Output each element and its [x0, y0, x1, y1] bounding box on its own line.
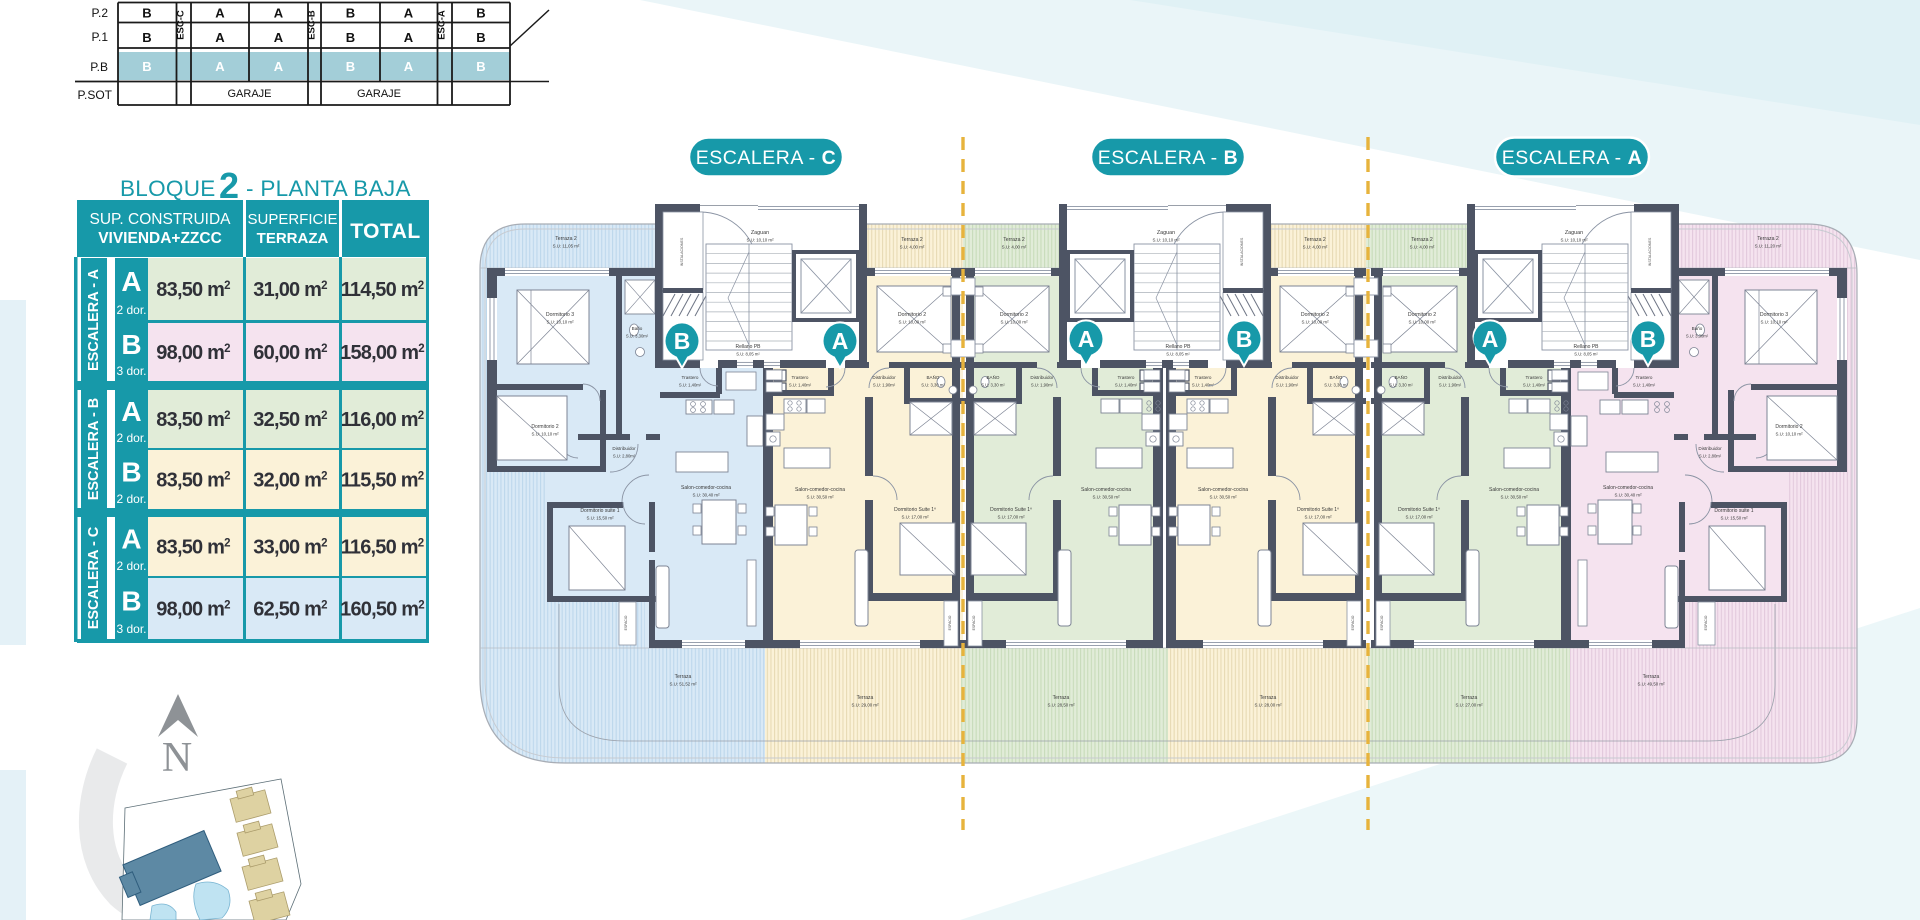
- svg-text:Dormitorio suite 1: Dormitorio suite 1: [1714, 508, 1753, 514]
- svg-text:S.U: 10,10 m²: S.U: 10,10 m²: [1775, 432, 1803, 437]
- svg-text:Trastero: Trastero: [682, 375, 699, 380]
- svg-text:S.U: 15,50 m²: S.U: 15,50 m²: [1720, 516, 1748, 521]
- svg-text:BLOQUE: BLOQUE: [120, 176, 216, 201]
- svg-text:A: A: [404, 30, 414, 45]
- svg-text:Dormitorio 2: Dormitorio 2: [898, 312, 926, 318]
- svg-text:Trastero: Trastero: [1195, 375, 1212, 380]
- svg-text:S.U: 2,80m²: S.U: 2,80m²: [1699, 454, 1722, 459]
- svg-text:Terraza 2: Terraza 2: [1304, 237, 1326, 243]
- svg-text:S.U: 28,00 m²: S.U: 28,00 m²: [1254, 703, 1282, 708]
- svg-text:INSTALACIONES: INSTALACIONES: [1648, 237, 1652, 266]
- svg-text:S.U: 10,10 m²: S.U: 10,10 m²: [1152, 238, 1180, 243]
- svg-text:Distribuidor: Distribuidor: [1275, 375, 1299, 380]
- svg-text:S.U: 1,40m²: S.U: 1,40m²: [1633, 383, 1656, 388]
- svg-text:Rellano PB: Rellano PB: [1165, 344, 1191, 350]
- svg-text:INSTALACIONES: INSTALACIONES: [680, 237, 684, 266]
- svg-text:S.U: 10,00 m²: S.U: 10,00 m²: [898, 320, 926, 325]
- svg-text:Rellano PB: Rellano PB: [735, 344, 761, 350]
- svg-text:Trastero: Trastero: [1636, 375, 1653, 380]
- svg-text:114,50 m2: 114,50 m2: [341, 279, 424, 301]
- svg-text:ESPACIO: ESPACIO: [948, 615, 952, 630]
- svg-text:116,00 m2: 116,00 m2: [341, 409, 424, 431]
- svg-text:98,00 m2: 98,00 m2: [156, 342, 230, 364]
- svg-text:GARAJE: GARAJE: [227, 88, 271, 100]
- svg-text:P.SOT: P.SOT: [78, 88, 113, 102]
- svg-text:ESPACIO: ESPACIO: [972, 615, 976, 630]
- svg-text:B: B: [1236, 326, 1253, 352]
- svg-text:ESCALERA - C: ESCALERA - C: [86, 526, 102, 629]
- svg-text:S.U: 10,10 m²: S.U: 10,10 m²: [746, 238, 774, 243]
- svg-text:S.U: 10,10 m²: S.U: 10,10 m²: [1760, 320, 1788, 325]
- svg-text:S.U: 10,10 m²: S.U: 10,10 m²: [546, 320, 574, 325]
- svg-text:Salon-comedor-cocina: Salon-comedor-cocina: [681, 485, 731, 491]
- svg-text:A: A: [404, 59, 414, 74]
- svg-text:S.U: 3,30 m²: S.U: 3,30 m²: [921, 383, 945, 388]
- svg-text:ESC-B: ESC-B: [307, 10, 318, 40]
- svg-text:B: B: [121, 329, 141, 360]
- svg-text:B: B: [121, 586, 141, 617]
- svg-text:ESPACIO: ESPACIO: [1704, 615, 1708, 630]
- svg-text:B: B: [476, 30, 485, 45]
- svg-text:S.U: 1,90m²: S.U: 1,90m²: [1439, 383, 1462, 388]
- svg-text:Distribuidor: Distribuidor: [1438, 375, 1462, 380]
- svg-text:ESPACIO: ESPACIO: [624, 615, 628, 630]
- svg-text:S.U: 4,00 m²: S.U: 4,00 m²: [1002, 245, 1027, 250]
- svg-text:S.U: 30,50 m²: S.U: 30,50 m²: [806, 495, 834, 500]
- svg-text:S.U: 17,00 m²: S.U: 17,00 m²: [901, 515, 929, 520]
- svg-text:ESCALERA - A: ESCALERA - A: [1502, 147, 1642, 169]
- svg-text:A: A: [215, 59, 225, 74]
- svg-text:Dormitorio 3: Dormitorio 3: [546, 312, 574, 318]
- svg-text:S.U: 27,00 m²: S.U: 27,00 m²: [1455, 703, 1483, 708]
- svg-text:A: A: [121, 396, 141, 427]
- svg-text:Rellano PB: Rellano PB: [1573, 344, 1599, 350]
- svg-text:S.U: 2,80m²: S.U: 2,80m²: [613, 454, 636, 459]
- svg-text:P.1: P.1: [92, 30, 109, 44]
- svg-text:160,50 m2: 160,50 m2: [340, 599, 424, 621]
- svg-text:Baño: Baño: [632, 326, 643, 331]
- svg-text:S.U: 1,90m²: S.U: 1,90m²: [1031, 383, 1054, 388]
- svg-text:Dormitorio Suite 1º: Dormitorio Suite 1º: [990, 507, 1032, 513]
- svg-text:2 dor.: 2 dor.: [116, 303, 146, 317]
- svg-text:Terraza: Terraza: [675, 674, 692, 680]
- svg-text:Dormitorio 2: Dormitorio 2: [1301, 312, 1329, 318]
- svg-text:Salon-comedor-cocina: Salon-comedor-cocina: [795, 487, 845, 493]
- svg-text:Salon-comedor-cocina: Salon-comedor-cocina: [1489, 487, 1539, 493]
- svg-text:Terraza: Terraza: [1461, 695, 1478, 701]
- svg-text:A: A: [404, 6, 414, 21]
- svg-text:B: B: [346, 30, 355, 45]
- svg-text:Terraza 2: Terraza 2: [1411, 237, 1433, 243]
- svg-text:83,50 m2: 83,50 m2: [156, 537, 230, 559]
- svg-text:P.2: P.2: [92, 6, 109, 20]
- svg-text:TERRAZA: TERRAZA: [257, 230, 329, 247]
- svg-text:Distribuidor: Distribuidor: [1698, 446, 1722, 451]
- svg-text:GARAJE: GARAJE: [357, 88, 401, 100]
- svg-text:S.U: 3,30m²: S.U: 3,30m²: [626, 334, 649, 339]
- svg-text:- PLANTA BAJA: - PLANTA BAJA: [246, 176, 411, 201]
- svg-text:S.U: 4,00 m²: S.U: 4,00 m²: [900, 245, 925, 250]
- svg-text:Baño: Baño: [1692, 326, 1703, 331]
- svg-text:ESPACIO: ESPACIO: [1380, 615, 1384, 630]
- svg-text:INSTALACIONES: INSTALACIONES: [1240, 237, 1244, 266]
- svg-text:BAÑO: BAÑO: [986, 374, 999, 380]
- svg-text:BAÑO: BAÑO: [926, 374, 939, 380]
- svg-text:ESCALERA - A: ESCALERA - A: [86, 268, 102, 371]
- svg-text:N: N: [162, 735, 192, 781]
- svg-text:Terraza 2: Terraza 2: [1757, 236, 1779, 242]
- svg-text:ESC-C: ESC-C: [176, 10, 187, 40]
- svg-text:2 dor.: 2 dor.: [116, 559, 146, 573]
- svg-text:S.U: 10,00 m²: S.U: 10,00 m²: [1408, 320, 1436, 325]
- svg-text:ESPACIO: ESPACIO: [1351, 615, 1355, 630]
- svg-text:S.U: 11,20 m²: S.U: 11,20 m²: [1755, 244, 1782, 249]
- svg-text:B: B: [142, 6, 151, 21]
- svg-text:ESC-A: ESC-A: [437, 10, 448, 40]
- svg-text:A: A: [215, 30, 225, 45]
- svg-text:62,50 m2: 62,50 m2: [253, 599, 327, 621]
- svg-text:A: A: [215, 6, 225, 21]
- svg-text:S.U: 51,52 m²: S.U: 51,52 m²: [669, 682, 697, 687]
- svg-text:A: A: [121, 266, 141, 297]
- svg-text:S.U: 8,05 m²: S.U: 8,05 m²: [1574, 352, 1598, 357]
- svg-text:B: B: [121, 457, 141, 488]
- svg-text:Dormitorio 2: Dormitorio 2: [531, 424, 558, 430]
- svg-text:S.U: 4,00 m²: S.U: 4,00 m²: [1410, 245, 1435, 250]
- svg-text:3 dor.: 3 dor.: [116, 364, 146, 378]
- svg-text:B: B: [674, 328, 691, 354]
- svg-text:S.U: 3,30 m²: S.U: 3,30 m²: [1324, 383, 1348, 388]
- svg-text:Trastero: Trastero: [1526, 375, 1543, 380]
- svg-text:A: A: [121, 524, 141, 555]
- svg-text:S.U: 10,10 m²: S.U: 10,10 m²: [531, 432, 559, 437]
- svg-text:Terraza: Terraza: [1260, 695, 1277, 701]
- svg-text:SUPERFICIE: SUPERFICIE: [247, 211, 337, 228]
- svg-text:Distribuidor: Distribuidor: [1030, 375, 1054, 380]
- svg-text:P.B: P.B: [90, 60, 108, 74]
- svg-text:32,50 m2: 32,50 m2: [253, 409, 327, 431]
- svg-text:BAÑO: BAÑO: [1329, 374, 1342, 380]
- svg-text:Terraza 2: Terraza 2: [1003, 237, 1025, 243]
- svg-text:Dormitorio 2: Dormitorio 2: [1408, 312, 1436, 318]
- svg-text:B: B: [476, 6, 485, 21]
- svg-text:Terraza: Terraza: [1643, 674, 1660, 680]
- svg-text:S.U: 8,05 m²: S.U: 8,05 m²: [1166, 352, 1190, 357]
- svg-text:Salon-comedor-cocina: Salon-comedor-cocina: [1603, 485, 1653, 491]
- svg-text:S.U: 1,40m²: S.U: 1,40m²: [789, 383, 812, 388]
- svg-text:A: A: [832, 328, 849, 354]
- svg-text:S.U: 17,00 m²: S.U: 17,00 m²: [1405, 515, 1433, 520]
- svg-text:Dormitorio suite 1: Dormitorio suite 1: [580, 508, 619, 514]
- svg-text:2 dor.: 2 dor.: [116, 431, 146, 445]
- svg-text:S.U: 3,30 m²: S.U: 3,30 m²: [1389, 383, 1413, 388]
- svg-text:2: 2: [219, 165, 239, 206]
- svg-text:Salon-comedor-cocina: Salon-comedor-cocina: [1198, 487, 1248, 493]
- svg-text:S.U: 49,50 m²: S.U: 49,50 m²: [1637, 682, 1665, 687]
- svg-text:Trastero: Trastero: [792, 375, 809, 380]
- svg-text:32,00 m2: 32,00 m2: [253, 470, 327, 492]
- svg-text:Terraza 2: Terraza 2: [555, 236, 577, 242]
- svg-text:Dormitorio 2: Dormitorio 2: [1000, 312, 1028, 318]
- svg-text:83,50 m2: 83,50 m2: [156, 470, 230, 492]
- svg-text:S.U: 30,50 m²: S.U: 30,50 m²: [1092, 495, 1120, 500]
- svg-text:S.U: 8,05 m²: S.U: 8,05 m²: [736, 352, 760, 357]
- svg-text:S.U: 30,40 m²: S.U: 30,40 m²: [692, 493, 720, 498]
- svg-text:B: B: [1640, 326, 1657, 352]
- svg-text:ESCALERA - C: ESCALERA - C: [696, 147, 836, 169]
- svg-text:115,50 m2: 115,50 m2: [341, 470, 424, 492]
- svg-text:ESCALERA - B: ESCALERA - B: [1098, 147, 1238, 169]
- svg-text:VIVIENDA+ZZCC: VIVIENDA+ZZCC: [98, 230, 222, 247]
- svg-text:S.U: 17,00 m²: S.U: 17,00 m²: [1304, 515, 1332, 520]
- svg-text:A: A: [274, 6, 284, 21]
- svg-text:S.U: 1,40m²: S.U: 1,40m²: [1523, 383, 1546, 388]
- svg-text:Salon-comedor-cocina: Salon-comedor-cocina: [1081, 487, 1131, 493]
- svg-text:S.U: 10,00 m²: S.U: 10,00 m²: [1000, 320, 1028, 325]
- svg-text:2 dor.: 2 dor.: [116, 492, 146, 506]
- svg-text:Trastero: Trastero: [1118, 375, 1135, 380]
- svg-text:Terraza: Terraza: [857, 695, 874, 701]
- svg-text:S.U: 30,50 m²: S.U: 30,50 m²: [1500, 495, 1528, 500]
- svg-text:83,50 m2: 83,50 m2: [156, 279, 230, 301]
- svg-text:A: A: [274, 59, 284, 74]
- svg-text:B: B: [142, 59, 151, 74]
- svg-text:B: B: [346, 59, 355, 74]
- svg-text:A: A: [274, 30, 284, 45]
- svg-text:158,00 m2: 158,00 m2: [340, 342, 424, 364]
- svg-text:Distribuidor: Distribuidor: [612, 446, 636, 451]
- svg-text:S.U: 30,50 m²: S.U: 30,50 m²: [1209, 495, 1237, 500]
- svg-text:83,50 m2: 83,50 m2: [156, 409, 230, 431]
- svg-text:3 dor.: 3 dor.: [116, 622, 146, 636]
- svg-text:S.U: 4,00 m²: S.U: 4,00 m²: [1303, 245, 1328, 250]
- svg-text:Zaguan: Zaguan: [751, 230, 769, 236]
- svg-text:33,00 m2: 33,00 m2: [253, 537, 327, 559]
- svg-text:S.U: 10,10 m²: S.U: 10,10 m²: [1560, 238, 1588, 243]
- svg-text:Zaguan: Zaguan: [1157, 230, 1175, 236]
- svg-text:S.U: 29,00 m²: S.U: 29,00 m²: [851, 703, 879, 708]
- svg-text:60,00 m2: 60,00 m2: [253, 342, 327, 364]
- svg-text:A: A: [1078, 326, 1095, 352]
- svg-text:S.U: 11,05 m²: S.U: 11,05 m²: [553, 244, 580, 249]
- svg-text:ESCALERA - B: ESCALERA - B: [86, 398, 102, 501]
- svg-text:Dormitorio Suite 1º: Dormitorio Suite 1º: [1297, 507, 1339, 513]
- svg-text:B: B: [346, 6, 355, 21]
- svg-text:Distribuidor: Distribuidor: [872, 375, 896, 380]
- svg-text:Dormitorio 2: Dormitorio 2: [1775, 424, 1802, 430]
- svg-text:S.U: 28,50 m²: S.U: 28,50 m²: [1047, 703, 1075, 708]
- svg-text:Dormitorio Suite 1º: Dormitorio Suite 1º: [894, 507, 936, 513]
- svg-text:SUP. CONSTRUIDA: SUP. CONSTRUIDA: [90, 211, 232, 228]
- svg-text:98,00 m2: 98,00 m2: [156, 599, 230, 621]
- svg-text:Terraza: Terraza: [1053, 695, 1070, 701]
- svg-text:S.U: 3,30 m²: S.U: 3,30 m²: [981, 383, 1005, 388]
- svg-text:Terraza 2: Terraza 2: [901, 237, 923, 243]
- svg-text:A: A: [1482, 326, 1499, 352]
- svg-text:S.U: 15,50 m²: S.U: 15,50 m²: [586, 516, 614, 521]
- svg-text:B: B: [142, 30, 151, 45]
- svg-text:S.U: 1,90m²: S.U: 1,90m²: [873, 383, 896, 388]
- svg-text:S.U: 1,40m²: S.U: 1,40m²: [679, 383, 702, 388]
- svg-text:S.U: 30,40 m²: S.U: 30,40 m²: [1614, 493, 1642, 498]
- svg-text:Dormitorio 3: Dormitorio 3: [1760, 312, 1788, 318]
- svg-text:31,00 m2: 31,00 m2: [253, 279, 327, 301]
- svg-text:S.U: 1,40m²: S.U: 1,40m²: [1115, 383, 1138, 388]
- svg-text:Dormitorio Suite 1º: Dormitorio Suite 1º: [1398, 507, 1440, 513]
- svg-text:TOTAL: TOTAL: [350, 220, 421, 243]
- svg-text:B: B: [476, 59, 485, 74]
- svg-text:116,50 m2: 116,50 m2: [341, 537, 424, 559]
- svg-text:Zaguan: Zaguan: [1565, 230, 1583, 236]
- svg-text:S.U: 1,40m²: S.U: 1,40m²: [1192, 383, 1215, 388]
- svg-text:S.U: 17,00 m²: S.U: 17,00 m²: [997, 515, 1025, 520]
- svg-text:S.U: 3,30m²: S.U: 3,30m²: [1686, 334, 1709, 339]
- svg-text:S.U: 10,00 m²: S.U: 10,00 m²: [1301, 320, 1329, 325]
- svg-text:BAÑO: BAÑO: [1394, 374, 1407, 380]
- svg-text:S.U: 1,90m²: S.U: 1,90m²: [1276, 383, 1299, 388]
